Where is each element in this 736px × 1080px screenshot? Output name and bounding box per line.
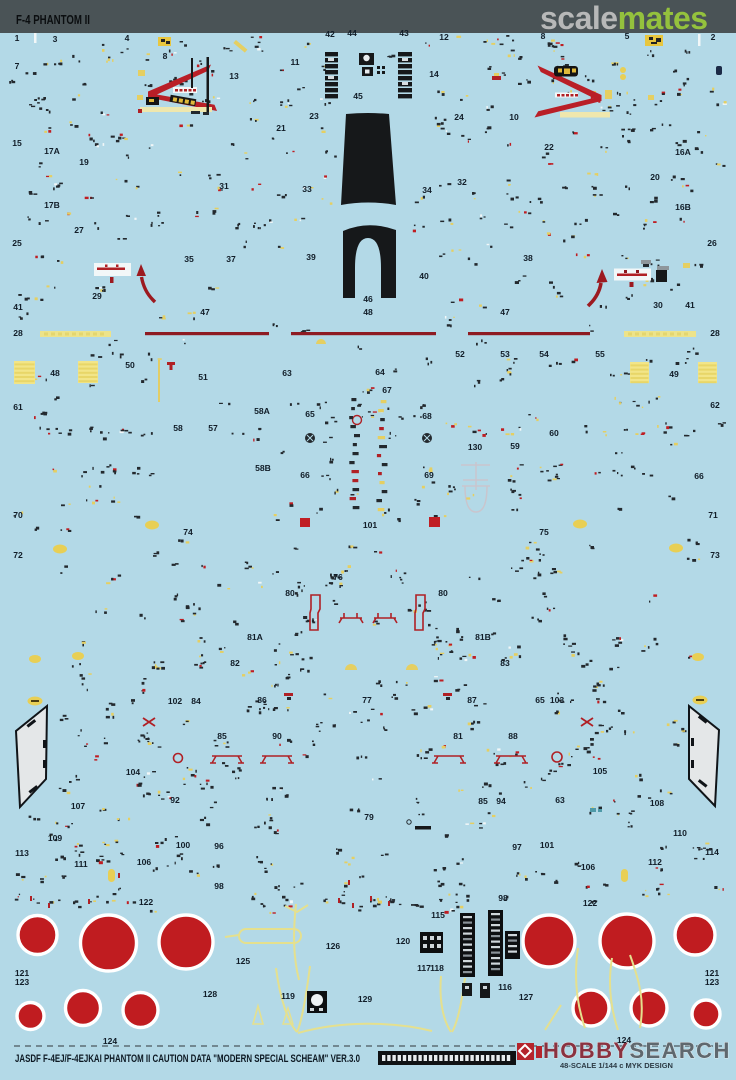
svg-text:41: 41	[13, 302, 23, 312]
svg-text:66: 66	[300, 470, 310, 480]
svg-text:68: 68	[422, 411, 432, 421]
svg-text:98: 98	[214, 881, 224, 891]
svg-text:15: 15	[12, 138, 22, 148]
svg-text:120: 120	[396, 936, 411, 946]
svg-text:106: 106	[137, 857, 152, 867]
svg-text:129: 129	[358, 994, 373, 1004]
svg-text:26: 26	[707, 238, 717, 248]
svg-text:2: 2	[711, 32, 716, 42]
svg-text:37: 37	[226, 254, 236, 264]
svg-text:63: 63	[555, 795, 565, 805]
svg-text:59: 59	[510, 441, 520, 451]
svg-text:57: 57	[208, 423, 218, 433]
svg-text:17A: 17A	[44, 146, 60, 156]
svg-text:55: 55	[595, 349, 605, 359]
svg-text:35: 35	[184, 254, 194, 264]
svg-text:28: 28	[710, 328, 720, 338]
svg-text:11: 11	[290, 57, 299, 67]
svg-text:119: 119	[281, 991, 295, 1001]
svg-text:106: 106	[581, 862, 596, 872]
svg-text:88: 88	[508, 731, 518, 741]
svg-text:41: 41	[685, 300, 695, 310]
svg-text:48: 48	[363, 307, 373, 317]
svg-text:65: 65	[535, 695, 545, 705]
svg-text:85: 85	[217, 731, 227, 741]
svg-text:114: 114	[705, 847, 719, 857]
svg-text:52: 52	[455, 349, 465, 359]
svg-text:48-SCALE 1/144 c MYK DESIGN: 48-SCALE 1/144 c MYK DESIGN	[560, 1061, 673, 1070]
svg-text:4: 4	[125, 33, 130, 43]
svg-text:96: 96	[214, 841, 224, 851]
svg-text:17B: 17B	[44, 200, 60, 210]
svg-text:58: 58	[173, 423, 183, 433]
svg-text:45: 45	[353, 91, 363, 101]
svg-text:47: 47	[200, 307, 210, 317]
svg-text:80: 80	[285, 588, 295, 598]
svg-text:83: 83	[500, 658, 510, 668]
svg-text:31: 31	[219, 181, 229, 191]
svg-text:33: 33	[302, 184, 312, 194]
svg-text:51: 51	[198, 372, 208, 382]
svg-text:61: 61	[13, 402, 23, 412]
svg-text:75: 75	[539, 527, 549, 537]
svg-text:66: 66	[694, 471, 704, 481]
svg-text:70: 70	[13, 510, 23, 520]
svg-text:13: 13	[229, 71, 239, 81]
svg-text:46: 46	[363, 294, 373, 304]
svg-text:98: 98	[498, 893, 508, 903]
svg-text:62: 62	[710, 400, 720, 410]
svg-text:124: 124	[103, 1036, 118, 1046]
svg-text:77: 77	[362, 695, 372, 705]
svg-text:100: 100	[176, 840, 191, 850]
svg-text:65: 65	[305, 409, 315, 419]
svg-text:16B: 16B	[675, 202, 691, 212]
svg-text:82: 82	[230, 658, 240, 668]
svg-text:125: 125	[236, 956, 251, 966]
svg-text:102: 102	[168, 696, 183, 706]
svg-text:104: 104	[126, 767, 141, 777]
svg-text:28: 28	[13, 328, 23, 338]
svg-text:53: 53	[500, 349, 510, 359]
svg-text:58B: 58B	[255, 463, 271, 473]
svg-text:116: 116	[498, 982, 512, 992]
svg-text:25: 25	[12, 238, 22, 248]
svg-text:76: 76	[333, 572, 343, 582]
svg-text:115: 115	[431, 910, 445, 920]
svg-text:71: 71	[708, 510, 718, 520]
svg-text:123: 123	[705, 977, 720, 987]
svg-text:5: 5	[625, 31, 630, 41]
svg-text:23: 23	[309, 111, 319, 121]
svg-text:90: 90	[272, 731, 282, 741]
svg-text:8: 8	[163, 51, 168, 61]
svg-text:19: 19	[79, 157, 89, 167]
svg-text:81B: 81B	[475, 632, 491, 642]
svg-text:81: 81	[453, 731, 463, 741]
svg-text:42: 42	[325, 29, 335, 39]
svg-text:43: 43	[399, 28, 409, 38]
svg-text:38: 38	[523, 253, 533, 263]
svg-text:16A: 16A	[675, 147, 691, 157]
svg-text:117: 117	[417, 963, 431, 973]
svg-text:58A: 58A	[254, 406, 270, 416]
svg-text:84: 84	[191, 696, 201, 706]
svg-text:27: 27	[74, 225, 84, 235]
svg-text:126: 126	[326, 941, 341, 951]
svg-text:128: 128	[203, 989, 218, 999]
svg-text:74: 74	[183, 527, 193, 537]
svg-text:3: 3	[53, 34, 58, 44]
svg-text:49: 49	[669, 369, 679, 379]
svg-text:81A: 81A	[247, 632, 263, 642]
svg-text:48: 48	[50, 368, 60, 378]
svg-text:109: 109	[48, 833, 63, 843]
svg-text:124: 124	[617, 1035, 632, 1045]
svg-text:101: 101	[540, 840, 555, 850]
svg-text:69: 69	[424, 470, 434, 480]
svg-text:64: 64	[375, 367, 385, 377]
svg-text:8: 8	[541, 31, 546, 41]
svg-text:12: 12	[439, 32, 449, 42]
svg-text:60: 60	[549, 428, 559, 438]
svg-text:1: 1	[15, 33, 20, 43]
svg-text:47: 47	[500, 307, 510, 317]
svg-text:24: 24	[454, 112, 464, 122]
svg-text:29: 29	[92, 291, 102, 301]
svg-text:85: 85	[478, 796, 488, 806]
svg-text:122: 122	[139, 897, 154, 907]
svg-text:20: 20	[650, 172, 660, 182]
svg-text:44: 44	[347, 28, 357, 38]
svg-text:34: 34	[422, 185, 432, 195]
svg-text:32: 32	[457, 177, 467, 187]
svg-text:127: 127	[519, 992, 534, 1002]
svg-text:72: 72	[13, 550, 23, 560]
svg-text:108: 108	[650, 798, 665, 808]
svg-text:22: 22	[544, 142, 554, 152]
svg-text:112: 112	[648, 857, 662, 867]
svg-text:54: 54	[539, 349, 549, 359]
svg-text:7: 7	[15, 61, 20, 71]
svg-text:F-4 PHANTOM II: F-4 PHANTOM II	[16, 13, 90, 27]
svg-text:130: 130	[468, 442, 483, 452]
svg-text:94: 94	[496, 796, 506, 806]
svg-text:73: 73	[710, 550, 720, 560]
svg-text:30: 30	[653, 300, 663, 310]
svg-text:92: 92	[170, 795, 180, 805]
svg-text:105: 105	[593, 766, 608, 776]
svg-text:111: 111	[74, 859, 88, 869]
svg-text:39: 39	[306, 252, 316, 262]
svg-text:10: 10	[509, 112, 519, 122]
svg-text:107: 107	[71, 801, 86, 811]
svg-text:67: 67	[382, 385, 392, 395]
svg-text:63: 63	[282, 368, 292, 378]
svg-text:123: 123	[15, 977, 30, 987]
svg-text:118: 118	[430, 963, 444, 973]
svg-text:40: 40	[419, 271, 429, 281]
svg-text:79: 79	[364, 812, 374, 822]
svg-text:101: 101	[363, 520, 378, 530]
svg-text:113: 113	[15, 848, 29, 858]
svg-text:JASDF F-4EJ/F-4EJKAI PHANTOM I: JASDF F-4EJ/F-4EJKAI PHANTOM II CAUTION …	[15, 1053, 360, 1065]
svg-text:97: 97	[512, 842, 522, 852]
svg-text:50: 50	[125, 360, 135, 370]
svg-text:87: 87	[467, 695, 477, 705]
svg-text:80: 80	[438, 588, 448, 598]
svg-text:HOBBYSEARCH: HOBBYSEARCH	[543, 1038, 731, 1063]
svg-text:86: 86	[257, 695, 267, 705]
svg-text:122: 122	[583, 898, 598, 908]
svg-text:103: 103	[550, 695, 565, 705]
svg-text:21: 21	[276, 123, 286, 133]
svg-text:110: 110	[673, 828, 687, 838]
svg-text:14: 14	[429, 69, 439, 79]
